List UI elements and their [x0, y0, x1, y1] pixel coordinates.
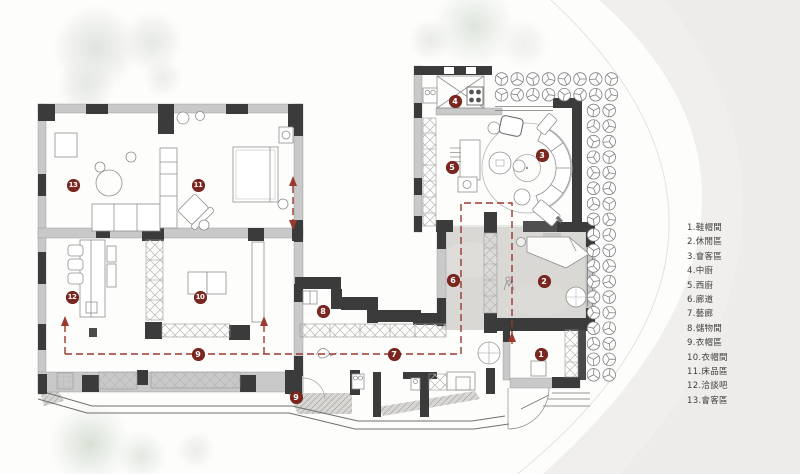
- shrub-icon: [603, 120, 616, 133]
- tree: [143, 58, 183, 98]
- route-arrow: [260, 316, 268, 326]
- shrub-icon: [574, 73, 587, 86]
- tree: [176, 430, 216, 470]
- shrub-icon: [587, 322, 600, 335]
- legend-item: 12.洽談吧: [687, 379, 728, 393]
- shrub-icon: [587, 198, 600, 211]
- room-marker-11: 11: [192, 179, 205, 192]
- shrub-icon: [587, 275, 600, 288]
- legend: 1.鞋帽間2.休閒區3.會客區4.中廚5.西廚6.廊道7.藝廊8.儲物間9.衣帽…: [687, 221, 728, 408]
- legend-item: 6.廊道: [687, 293, 728, 307]
- shrub-icon: [605, 73, 618, 86]
- shrub-icon: [603, 275, 616, 288]
- shrub-icon: [603, 182, 616, 195]
- shrub-icon: [587, 291, 600, 304]
- legend-item: 2.休閒區: [687, 235, 728, 249]
- shrub-icon: [511, 88, 524, 101]
- shrub-icon: [574, 88, 587, 101]
- shrub-icon: [587, 213, 600, 226]
- shrub-icon: [603, 353, 616, 366]
- shrub-icon: [587, 135, 600, 148]
- shrub-icon: [603, 322, 616, 335]
- shrub-icon: [587, 104, 600, 117]
- room-marker-8: 8: [317, 305, 330, 318]
- shrub-icon: [589, 88, 602, 101]
- shrub-icon: [527, 88, 540, 101]
- room-marker-3: 3: [536, 149, 549, 162]
- shrub-icon: [603, 229, 616, 242]
- legend-item: 1.鞋帽間: [687, 221, 728, 235]
- shrub-icon: [603, 151, 616, 164]
- shrub-icon: [495, 88, 508, 101]
- legend-item: 5.西廚: [687, 279, 728, 293]
- legend-item: 7.藝廊: [687, 307, 728, 321]
- tree: [408, 18, 452, 62]
- room-marker-9: 9: [192, 348, 205, 361]
- room-marker-5: 5: [446, 161, 459, 174]
- shrub-icon: [511, 73, 524, 86]
- shrub-icon: [587, 244, 600, 257]
- room-marker-10: 10: [194, 291, 207, 304]
- room-marker-12: 12: [66, 291, 79, 304]
- shrub-icon: [603, 306, 616, 319]
- shrub-icon: [542, 88, 555, 101]
- shrub-icon: [587, 260, 600, 273]
- shrub-icon: [587, 229, 600, 242]
- route-arrow: [61, 316, 69, 326]
- shrub-icon: [603, 166, 616, 179]
- tree: [498, 18, 550, 70]
- shrub-icon: [603, 104, 616, 117]
- shrub-icon: [603, 291, 616, 304]
- shrub-icon: [587, 166, 600, 179]
- legend-item: 8.儲物間: [687, 322, 728, 336]
- legend-item: 4.中廚: [687, 264, 728, 278]
- floor-plan-page: 1.鞋帽間2.休閒區3.會客區4.中廚5.西廚6.廊道7.藝廊8.儲物間9.衣帽…: [0, 0, 800, 474]
- legend-item: 13.會客區: [687, 394, 728, 408]
- room-marker-4: 4: [449, 95, 462, 108]
- shrub-icon: [603, 260, 616, 273]
- legend-item: 11.床品區: [687, 365, 728, 379]
- shrub-icon: [587, 369, 600, 382]
- shrub-icon: [605, 88, 618, 101]
- shrub-icon: [587, 120, 600, 133]
- shrub-icon: [603, 244, 616, 257]
- room-marker-7: 7: [388, 348, 401, 361]
- legend-item: 9.衣帽區: [687, 336, 728, 350]
- legend-item: 10.衣帽間: [687, 351, 728, 365]
- shrub-icon: [589, 73, 602, 86]
- shrub-icon: [587, 306, 600, 319]
- legend-item: 3.會客區: [687, 250, 728, 264]
- shrub-icon: [587, 337, 600, 350]
- floor-plan-drawing: [0, 0, 800, 474]
- shrub-icon: [603, 369, 616, 382]
- shrub-icon: [527, 73, 540, 86]
- room-marker-1: 1: [535, 348, 548, 361]
- shrub-icon: [603, 198, 616, 211]
- shrub-icon: [558, 73, 571, 86]
- shrub-icon: [603, 135, 616, 148]
- shrub-icon: [542, 73, 555, 86]
- shrub-icon: [603, 337, 616, 350]
- shrub-icon: [495, 73, 508, 86]
- room-marker-13: 13: [67, 179, 80, 192]
- shrub-icon: [587, 151, 600, 164]
- shrub-icon: [558, 88, 571, 101]
- shrub-icon: [587, 353, 600, 366]
- room-marker-6: 6: [447, 274, 460, 287]
- room-marker-2: 2: [538, 275, 551, 288]
- room-marker-9: 9: [290, 391, 303, 404]
- shrub-icon: [603, 213, 616, 226]
- shrub-icon: [587, 182, 600, 195]
